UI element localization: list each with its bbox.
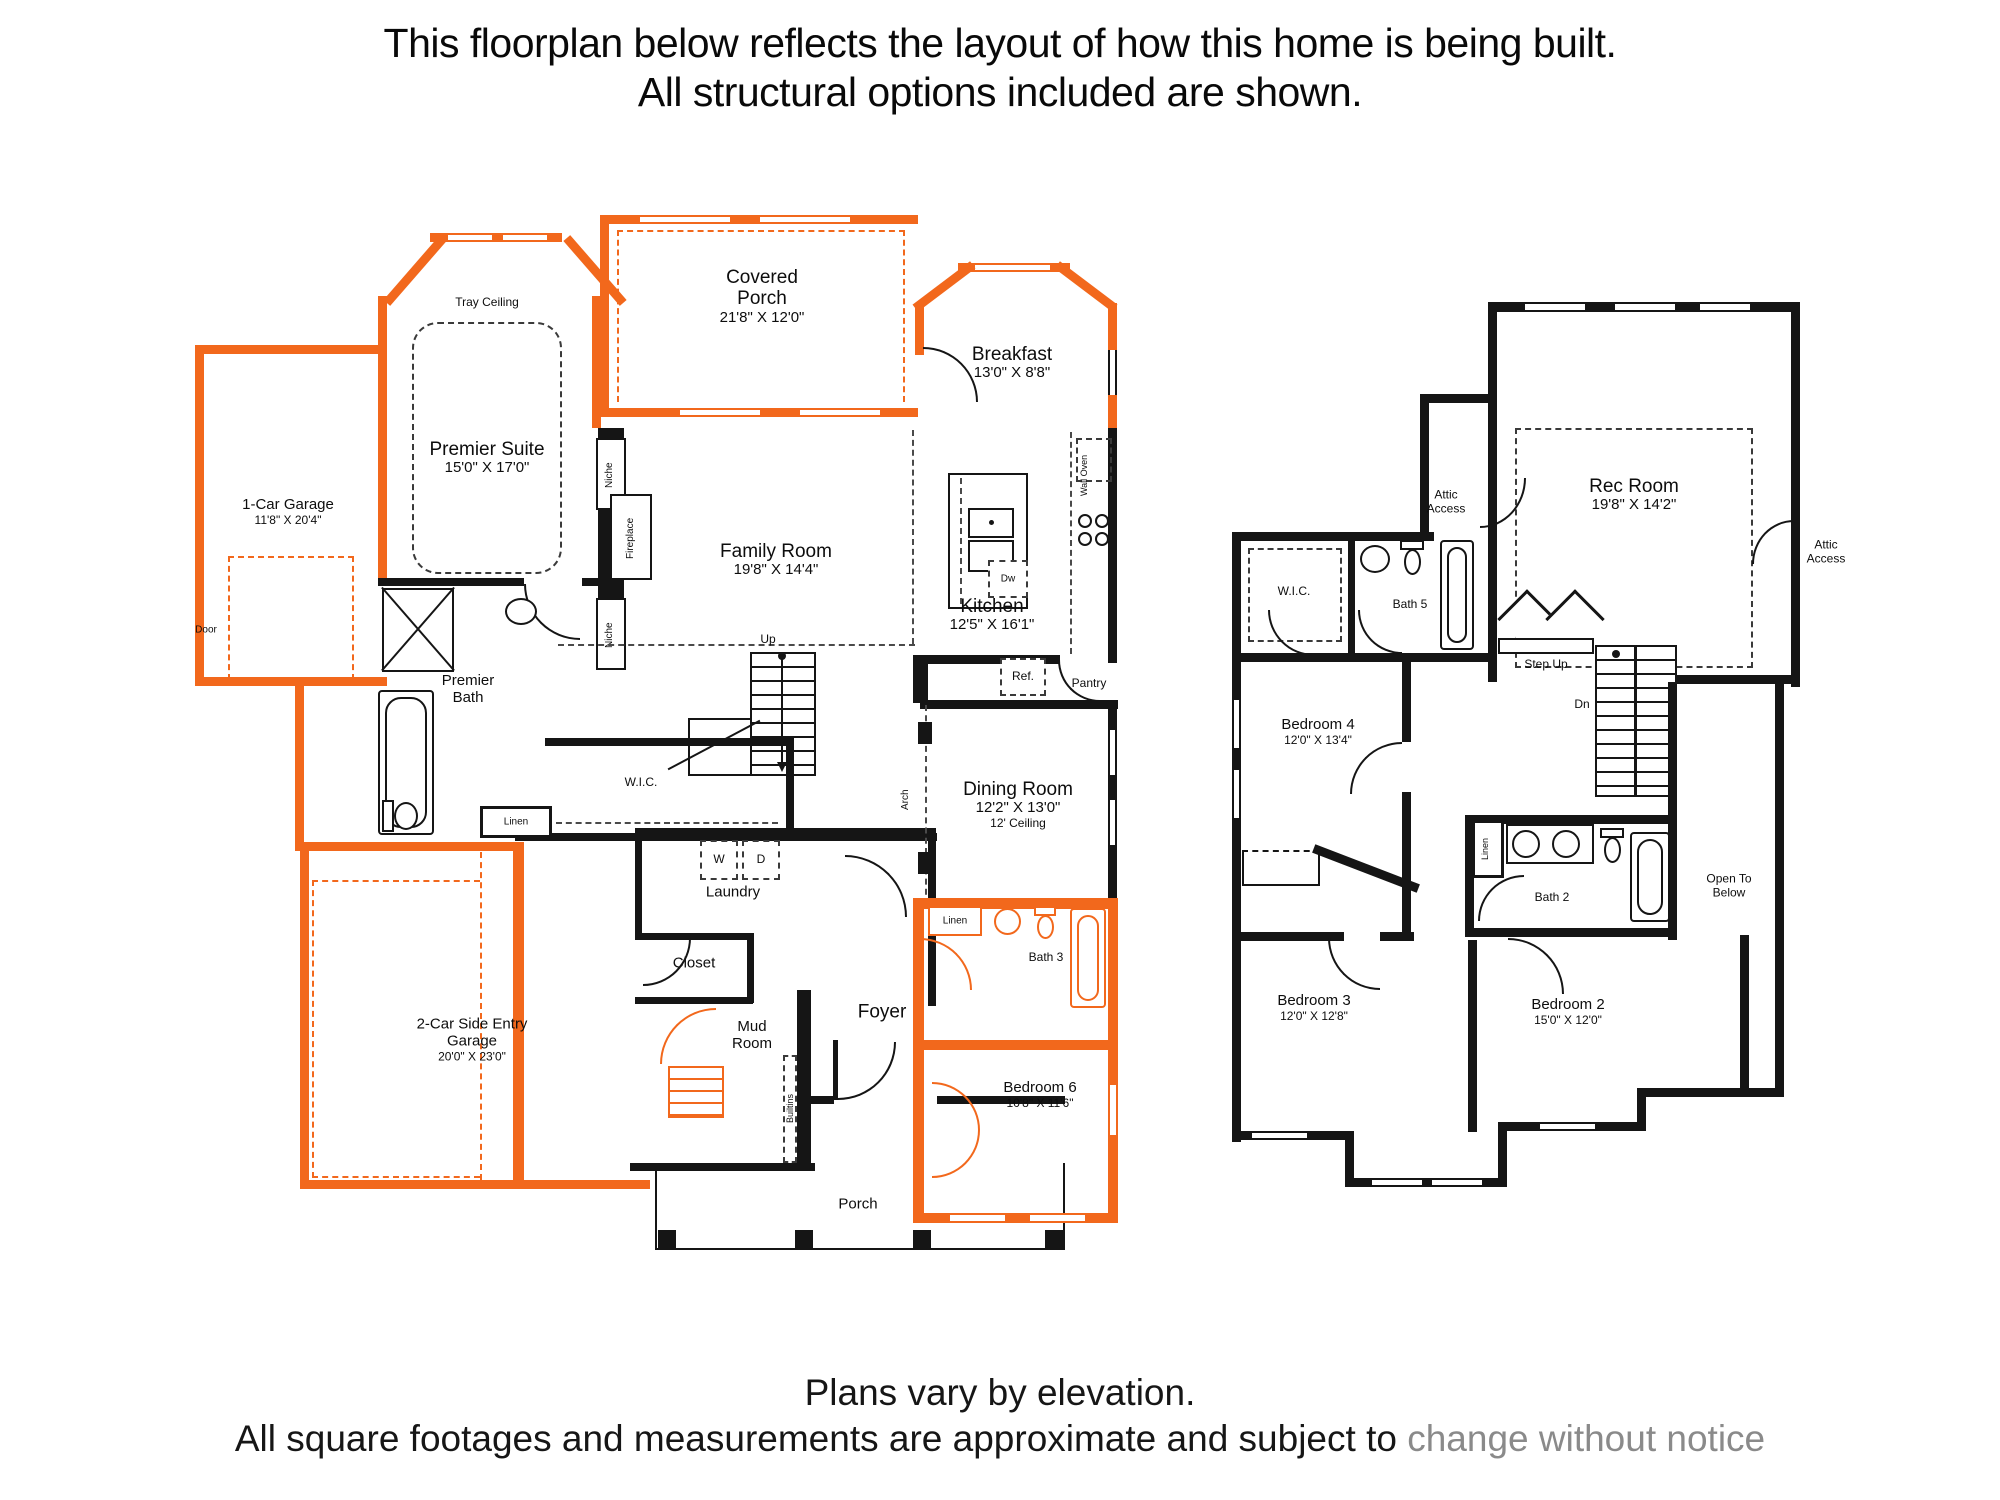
footer-line-2-main: All square footages and measurements are… <box>235 1418 1407 1459</box>
porch-post <box>795 1230 813 1248</box>
room-label-2car-garage: 2-Car Side Entry Garage 20'0" X 23'0" <box>402 1016 542 1063</box>
wall <box>1380 932 1414 941</box>
washer-label: W <box>713 853 724 867</box>
wall <box>786 738 794 840</box>
wall <box>1108 898 1118 1050</box>
wall <box>545 738 793 746</box>
wall <box>1232 653 1490 662</box>
cooktop-burner <box>1095 532 1109 546</box>
wall <box>810 1096 834 1104</box>
wall <box>1465 928 1677 937</box>
room-label-1car-garage: 1-Car Garage 11'8" X 20'4" <box>223 497 353 527</box>
wall <box>920 700 1118 709</box>
footer-line-2: All square footages and measurements are… <box>0 1418 2000 1460</box>
wall <box>1791 302 1800 687</box>
refrigerator-label: Ref. <box>1012 670 1034 684</box>
cooktop-burner <box>1095 514 1109 528</box>
door-arc <box>1328 938 1380 990</box>
wall <box>635 828 642 940</box>
garage-steps <box>668 1066 724 1118</box>
linen-label: Linen <box>504 816 528 827</box>
sink-symbol <box>1512 830 1540 858</box>
window-symbol <box>1108 350 1117 395</box>
stair-landing <box>688 718 752 776</box>
room-label-kitchen: Kitchen 12'5" X 16'1" <box>927 596 1057 634</box>
cooktop-burner <box>1078 532 1092 546</box>
window-symbol <box>1108 800 1117 845</box>
wall <box>1420 394 1429 540</box>
wall <box>913 1040 924 1223</box>
wall <box>635 828 935 836</box>
builtins-label: Builtins <box>786 1072 795 1144</box>
bathtub-symbol <box>1070 908 1106 1008</box>
window-symbol <box>1232 770 1241 818</box>
window-symbol <box>1540 1122 1595 1131</box>
tray-ceiling-label: Tray Ceiling <box>455 296 519 310</box>
wic-label: W.I.C. <box>625 776 658 790</box>
wall-oven-label: Wall Oven <box>1080 440 1089 510</box>
window-symbol <box>1432 1178 1482 1187</box>
garage-door-dashed <box>228 556 354 680</box>
toilet-symbol <box>1604 837 1621 863</box>
wall <box>1488 394 1497 682</box>
window-symbol <box>1615 302 1675 312</box>
room-label-bedroom6: Bedroom 6 10'8" X 11'6" <box>975 1080 1105 1110</box>
arch-post <box>918 722 932 744</box>
room-label-laundry: Laundry <box>706 885 760 902</box>
door-arc <box>920 938 972 990</box>
header-line-2: All structural options included are show… <box>0 69 2000 116</box>
room-label-bath2: Bath 2 <box>1533 891 1571 905</box>
island-dashed <box>960 478 962 604</box>
attic-access-right-label: Attic Access <box>1799 538 1853 565</box>
window-symbol <box>975 263 1050 272</box>
linen-label: Linen <box>943 915 967 926</box>
wall <box>747 933 754 1003</box>
sink-symbol <box>1360 545 1390 573</box>
sink-symbol <box>994 908 1021 935</box>
wall <box>1775 682 1784 1097</box>
dryer-label: D <box>757 853 766 867</box>
sink-faucet <box>989 520 994 525</box>
room-label-bath3: Bath 3 <box>1027 951 1065 965</box>
wall <box>797 990 811 1170</box>
wall <box>378 578 524 586</box>
sink-symbol <box>1552 830 1580 858</box>
attic-access-left-label: Attic Access <box>1418 488 1474 515</box>
room-label-premier-suite: Premier Suite 15'0" X 17'0" <box>422 439 552 477</box>
window-symbol <box>1232 700 1241 748</box>
footer-line-1: Plans vary by elevation. <box>0 1372 2000 1414</box>
stair-arrow-line <box>781 658 783 762</box>
niche-label: Niche <box>605 607 615 663</box>
sink-symbol <box>505 598 537 625</box>
dishwasher-label: Dw <box>1001 573 1015 584</box>
wall <box>383 235 446 306</box>
wic-label: W.I.C. <box>1278 585 1311 599</box>
wall <box>592 296 601 428</box>
step-up-tread <box>1498 638 1594 654</box>
porch-post <box>1045 1230 1063 1248</box>
window-symbol <box>1108 730 1117 775</box>
floorplan-image: { "header": { "line1": "This floorplan b… <box>0 0 2000 1500</box>
wall <box>1488 302 1497 402</box>
wall <box>1232 532 1241 1142</box>
bathtub-symbol <box>1440 540 1474 650</box>
wall <box>1740 935 1749 1093</box>
toilet-symbol <box>1037 915 1054 939</box>
room-label-breakfast: Breakfast 13'0" X 8'8" <box>952 344 1072 382</box>
room-label-family-room: Family Room 19'8" X 14'4" <box>711 541 841 579</box>
ceiling-break-dashed <box>558 644 915 646</box>
wall <box>1498 1122 1507 1187</box>
fireplace-label: Fireplace <box>626 500 636 576</box>
wall <box>300 842 309 1187</box>
cooktop-burner <box>1078 514 1092 528</box>
room-label-mud-room: Mud Room <box>717 1019 787 1053</box>
window-symbol <box>1525 302 1585 312</box>
door-arc <box>1508 938 1564 994</box>
room-label-bedroom4: Bedroom 4 12'0" X 13'4" <box>1253 717 1383 747</box>
door-arc <box>1358 610 1402 654</box>
toilet-symbol <box>1404 549 1421 575</box>
header-line-1: This floorplan below reflects the layout… <box>0 20 2000 67</box>
window-symbol <box>1372 1178 1422 1187</box>
window-symbol <box>950 1213 1005 1223</box>
wall <box>582 578 602 586</box>
porch-post <box>658 1230 676 1248</box>
window-symbol <box>1700 302 1750 312</box>
room-label-porch: Porch <box>838 1197 877 1214</box>
wall <box>378 296 387 586</box>
wall <box>1345 1178 1507 1187</box>
linen-label: Linen <box>1481 826 1490 872</box>
room-label-bedroom3: Bedroom 3 12'0" X 12'8" <box>1249 993 1379 1023</box>
stairs-up <box>750 652 816 776</box>
toilet-symbol <box>382 800 394 832</box>
window-symbol <box>640 215 730 224</box>
door-arc <box>1268 610 1314 656</box>
door-arc <box>660 1008 716 1064</box>
toilet-symbol <box>394 802 418 830</box>
wall <box>195 345 386 354</box>
wall <box>300 1180 650 1189</box>
wall <box>600 215 609 417</box>
window-symbol <box>1252 1131 1307 1140</box>
window-symbol <box>1030 1213 1085 1223</box>
attic-door-arc <box>1752 520 1794 564</box>
wall <box>635 997 753 1004</box>
window-symbol <box>800 408 880 417</box>
rec-ceiling-dashed <box>1515 428 1753 668</box>
wall <box>1637 1088 1784 1097</box>
dn-label: Dn <box>1574 698 1589 712</box>
stair-arrow-dot <box>778 652 786 660</box>
wall <box>913 1040 1118 1050</box>
door-arc <box>1478 875 1524 921</box>
pantry-label: Pantry <box>1072 677 1107 691</box>
open-to-below-label: Open To Below <box>1705 872 1753 899</box>
wall <box>295 842 517 851</box>
arch-label: Arch <box>901 778 911 822</box>
room-label-bedroom2: Bedroom 2 15'0" X 12'0" <box>1503 997 1633 1027</box>
stair-arrow-dot <box>1612 650 1620 658</box>
up-label: Up <box>760 633 775 647</box>
room-label-rec-room: Rec Room 19'8" X 14'2" <box>1579 476 1689 514</box>
wall <box>1402 662 1411 742</box>
door-arc <box>643 938 691 986</box>
footer-line-2-tail: change without notice <box>1407 1418 1765 1459</box>
wall <box>1468 940 1477 1132</box>
wall <box>1402 792 1411 940</box>
door-arc <box>1350 742 1402 794</box>
room-label-covered-porch: Covered Porch 21'8" X 12'0" <box>702 267 822 327</box>
window-symbol <box>1108 1085 1118 1135</box>
door-arc <box>932 1082 980 1130</box>
wall <box>913 1213 1118 1223</box>
stair-rail <box>1634 645 1637 797</box>
door-label: Door <box>195 624 217 635</box>
wall <box>1348 538 1355 656</box>
counter-dashed <box>1070 432 1072 654</box>
wall <box>295 683 304 845</box>
window-symbol <box>503 233 547 242</box>
wall <box>513 842 524 1042</box>
closet-rod-dashed <box>556 822 778 824</box>
room-label-foyer: Foyer <box>858 1001 907 1022</box>
step-up-label: Step Up <box>1524 658 1567 672</box>
arch-post <box>918 852 932 874</box>
bathtub-symbol <box>1630 832 1670 922</box>
window-seat <box>1242 850 1320 886</box>
wall <box>1420 394 1496 403</box>
room-label-premier-bath: Premier Bath <box>426 673 511 707</box>
window-symbol <box>680 408 760 417</box>
window-symbol <box>760 215 850 224</box>
wall <box>913 655 928 703</box>
window-symbol <box>448 233 492 242</box>
wall <box>1668 682 1677 940</box>
door-arc <box>845 855 907 917</box>
porch-post <box>913 1230 931 1248</box>
room-divider-dashed <box>912 430 914 644</box>
front-door-arc <box>838 1042 896 1100</box>
room-label-dining-room: Dining Room 12'2" X 13'0" 12' Ceiling <box>953 779 1083 831</box>
